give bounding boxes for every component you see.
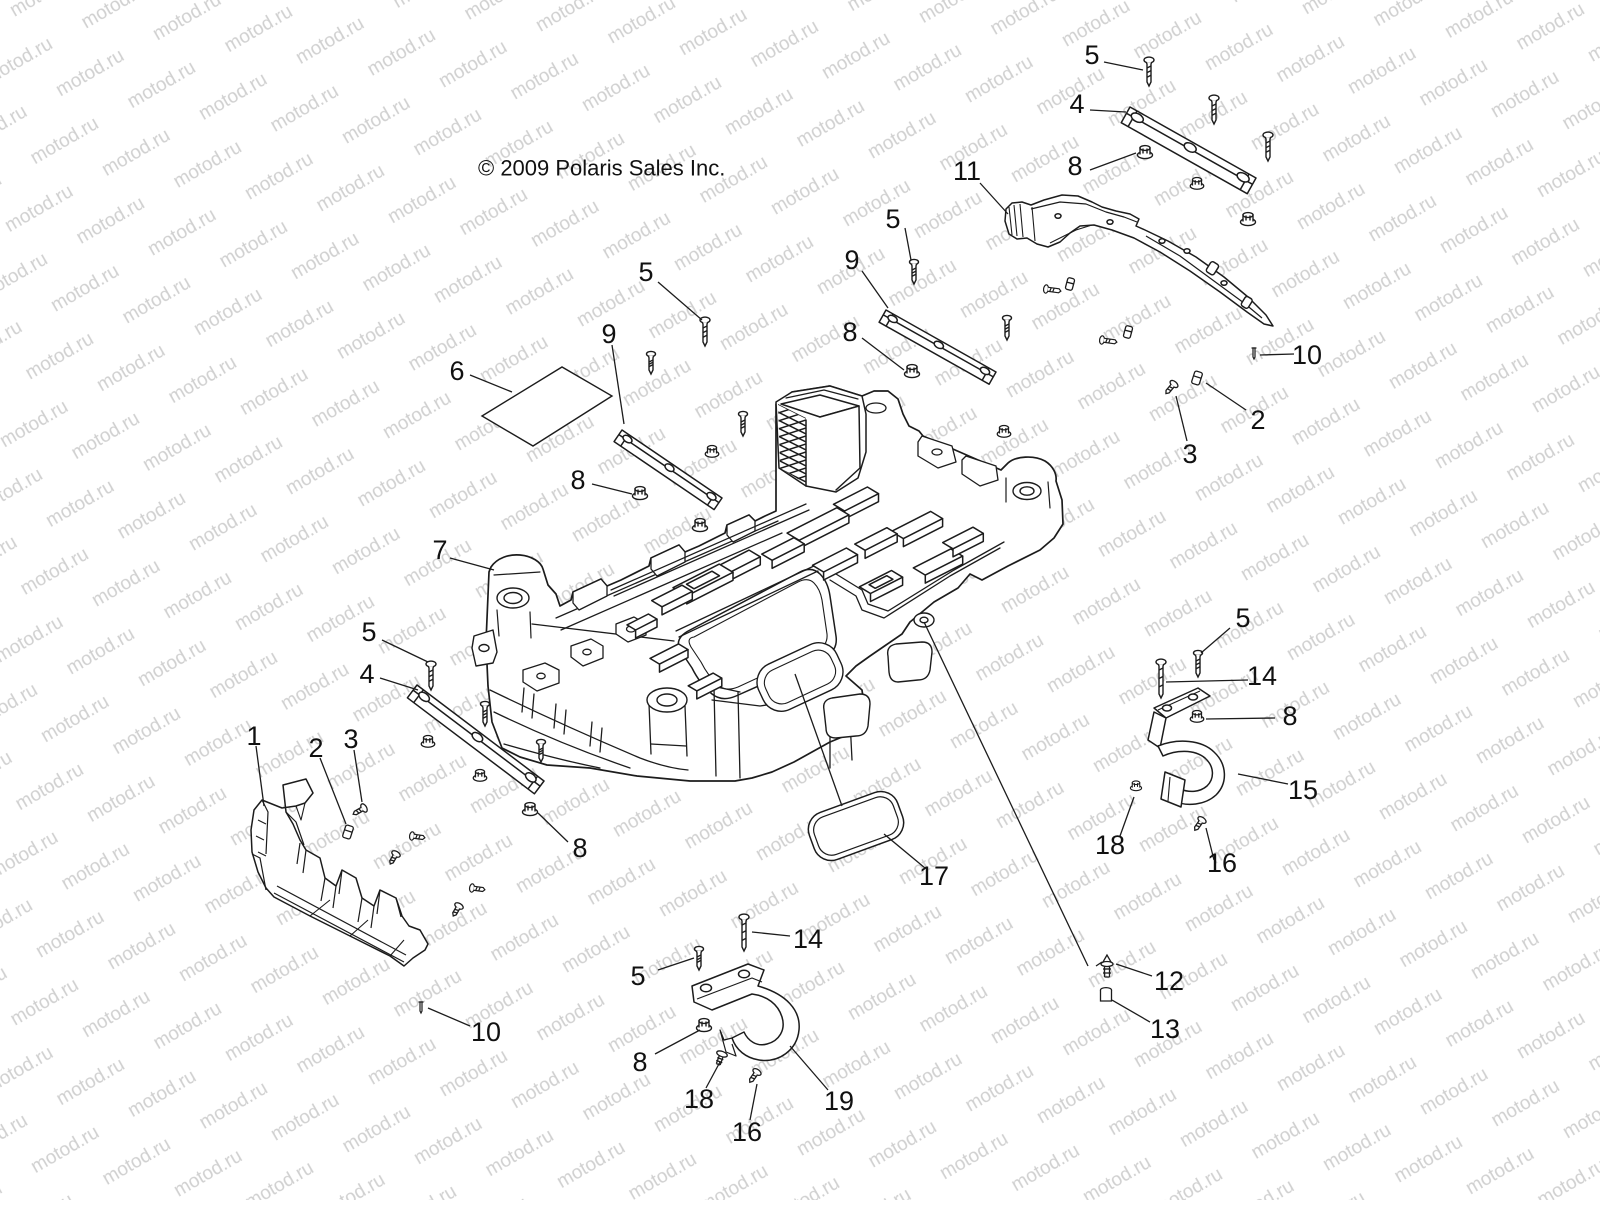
svg-text:15: 15 <box>1288 775 1318 805</box>
svg-text:1: 1 <box>246 721 261 751</box>
svg-text:4: 4 <box>1069 89 1084 119</box>
svg-text:10: 10 <box>1292 340 1322 370</box>
svg-text:8: 8 <box>1067 151 1082 181</box>
svg-text:17: 17 <box>919 861 949 891</box>
svg-text:© 2009 Polaris Sales Inc.: © 2009 Polaris Sales Inc. <box>478 156 725 181</box>
svg-text:5: 5 <box>1235 603 1250 633</box>
svg-text:3: 3 <box>1182 439 1197 469</box>
svg-text:7: 7 <box>432 535 447 565</box>
svg-text:13: 13 <box>1150 1014 1180 1044</box>
svg-text:5: 5 <box>638 257 653 287</box>
svg-text:5: 5 <box>630 961 645 991</box>
svg-text:5: 5 <box>1084 40 1099 70</box>
svg-text:14: 14 <box>1247 661 1277 691</box>
svg-text:16: 16 <box>732 1117 762 1147</box>
svg-text:8: 8 <box>1282 701 1297 731</box>
svg-text:3: 3 <box>343 724 358 754</box>
svg-text:11: 11 <box>953 156 981 186</box>
svg-text:14: 14 <box>793 924 823 954</box>
svg-text:6: 6 <box>449 356 464 386</box>
svg-text:2: 2 <box>308 733 323 763</box>
svg-text:8: 8 <box>572 833 587 863</box>
svg-text:5: 5 <box>361 617 376 647</box>
svg-text:5: 5 <box>885 204 900 234</box>
svg-text:9: 9 <box>601 319 616 349</box>
svg-text:18: 18 <box>684 1084 714 1114</box>
svg-text:9: 9 <box>844 245 859 275</box>
svg-text:12: 12 <box>1154 966 1184 996</box>
svg-text:8: 8 <box>632 1047 647 1077</box>
svg-text:10: 10 <box>471 1017 501 1047</box>
svg-text:8: 8 <box>842 317 857 347</box>
svg-text:16: 16 <box>1207 848 1237 878</box>
svg-text:2: 2 <box>1250 405 1265 435</box>
svg-text:4: 4 <box>359 659 374 689</box>
svg-text:19: 19 <box>824 1086 854 1116</box>
svg-text:8: 8 <box>570 465 585 495</box>
svg-text:18: 18 <box>1095 830 1125 860</box>
